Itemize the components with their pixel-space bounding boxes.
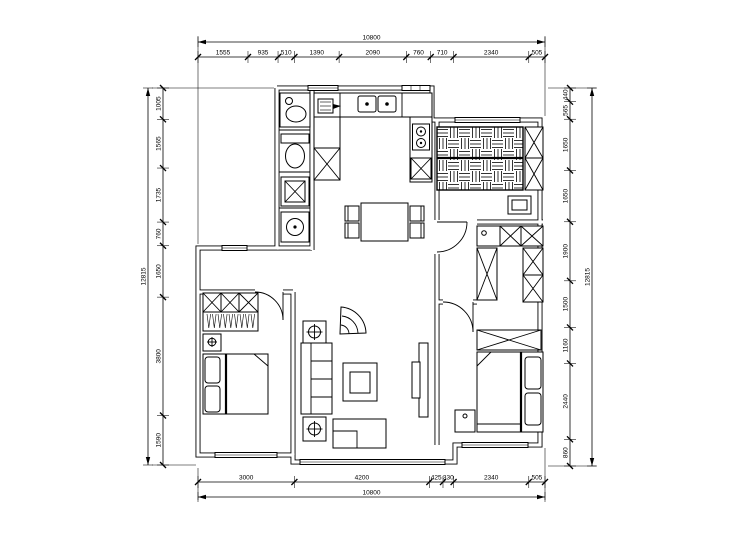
- washing-machine-icon: [281, 177, 309, 206]
- coffee-table-icon: [343, 363, 377, 401]
- master-window-icon: [455, 118, 520, 123]
- dim-arrow: [146, 88, 150, 96]
- dim-label: 1735: [156, 187, 163, 202]
- nightstand-icon: [508, 196, 531, 214]
- dim-label: 505: [531, 50, 542, 57]
- clothes-rail-icon: [203, 312, 258, 331]
- washbasin-icon: [280, 93, 310, 127]
- tall-cabinet-icon: [314, 117, 340, 180]
- dim-label: 425: [431, 475, 442, 482]
- nightstand-icon: [203, 334, 221, 351]
- dimension-top: 155593551013902090760710234050510800: [195, 35, 548, 64]
- bedroom-left-window-icon: [215, 453, 277, 458]
- dim-label: 2340: [484, 50, 499, 57]
- dining-chair-icon: [345, 223, 359, 238]
- dim-label: 3800: [156, 349, 163, 364]
- dim-label: 1900: [563, 244, 570, 259]
- dim-arrow: [590, 458, 594, 466]
- dim-label: 2440: [563, 394, 570, 409]
- floor-plan-canvas: 155593551013902090760710234050510800 300…: [0, 0, 740, 555]
- wardrobe-icon: [203, 293, 221, 312]
- bed-icon: [203, 354, 268, 414]
- dim-total-label: 10800: [362, 490, 380, 497]
- hall-window-icon: [222, 246, 247, 251]
- dim-total-label: 12815: [141, 267, 148, 285]
- dining-chair-icon: [410, 206, 424, 221]
- wardrobe-icon: [523, 248, 543, 275]
- dim-arrow: [590, 88, 594, 96]
- dim-label: 1500: [563, 297, 570, 312]
- dim-label: 1590: [156, 433, 163, 448]
- wardrobe-icon: [525, 127, 543, 158]
- wardrobe-icon: [525, 158, 543, 190]
- tv-icon: [412, 343, 428, 417]
- dim-label: 710: [437, 50, 448, 57]
- dim-label: 1650: [156, 264, 163, 279]
- master-bedroom-door-icon: [437, 222, 467, 252]
- dim-label: 1650: [563, 189, 570, 204]
- bathroom: [279, 93, 310, 242]
- closet-cabinet-icon: [477, 226, 500, 246]
- dim-label: 760: [156, 228, 163, 239]
- dim-arrow: [537, 40, 545, 44]
- dim-label: 1005: [156, 96, 163, 111]
- wardrobe-icon: [521, 226, 543, 246]
- dim-arrow: [198, 495, 206, 499]
- bay-window-icon: [300, 460, 445, 465]
- dim-arrow: [146, 457, 150, 465]
- toilet-icon: [281, 134, 309, 168]
- kitchen-window-icon: [308, 86, 338, 91]
- wardrobe-icon: [523, 275, 543, 302]
- dim-label: 3000: [239, 475, 254, 482]
- tv-stand-icon: [455, 410, 475, 432]
- dresser-icon: [477, 330, 541, 350]
- bedroom-right: [455, 330, 543, 432]
- dim-label: 1390: [310, 50, 325, 57]
- dim-label: 2090: [365, 50, 380, 57]
- master-bedroom: [437, 127, 543, 302]
- dim-label: 505: [531, 475, 542, 482]
- bedroom-left-door-icon: [255, 292, 283, 320]
- bed-icon: [477, 352, 543, 432]
- dim-label: 760: [413, 50, 424, 57]
- dim-total-label: 10800: [362, 35, 380, 42]
- floor-plan-drawing: 155593551013902090760710234050510800 300…: [0, 0, 740, 555]
- dim-label: 1160: [563, 338, 570, 352]
- wardrobe-icon: [500, 226, 521, 246]
- corner-plant-icon: [340, 307, 366, 334]
- bedroom-right-window-icon: [462, 443, 528, 448]
- dim-label: 510: [281, 50, 292, 57]
- dim-label: 1565: [156, 136, 163, 151]
- entry-window-icon: [402, 86, 430, 91]
- floor-lamp-icon: [303, 321, 326, 343]
- dim-label: 1650: [563, 137, 570, 152]
- dim-label: 330: [443, 475, 454, 482]
- dim-arrow: [198, 40, 206, 44]
- bedroom-left: [203, 293, 268, 414]
- dimension-left: 10051565173576016503800159012815: [141, 85, 170, 468]
- dim-total-label: 12815: [585, 268, 592, 286]
- wardrobe-icon: [221, 293, 239, 312]
- dim-label: 440: [563, 89, 570, 100]
- dining-chair-icon: [345, 206, 359, 221]
- dim-arrow: [537, 495, 545, 499]
- bay-desk-icon: [333, 419, 386, 448]
- dining-table: [361, 203, 408, 241]
- fridge-icon: [411, 158, 431, 179]
- dimension-bottom: 30004200425330234050510800: [195, 475, 548, 503]
- sofa-icon: [301, 343, 332, 414]
- water-heater-icon: [281, 212, 309, 242]
- wardrobe-icon: [477, 248, 497, 300]
- dim-label: 565: [563, 105, 570, 116]
- living-room: [301, 307, 428, 448]
- dim-label: 860: [563, 447, 570, 458]
- floor-lamp-icon: [303, 417, 326, 441]
- dining-chair-icon: [410, 223, 424, 238]
- dimension-right: 44056516501650190015001160244086012815: [563, 85, 598, 469]
- wardrobe-icon: [239, 293, 258, 312]
- dining-set: [345, 203, 424, 241]
- dim-label: 935: [258, 50, 269, 57]
- bedroom-right-door-icon: [443, 302, 473, 332]
- dim-label: 4200: [355, 475, 370, 482]
- dim-label: 1555: [216, 50, 231, 57]
- kitchen: [314, 93, 432, 182]
- dim-label: 2340: [484, 475, 499, 482]
